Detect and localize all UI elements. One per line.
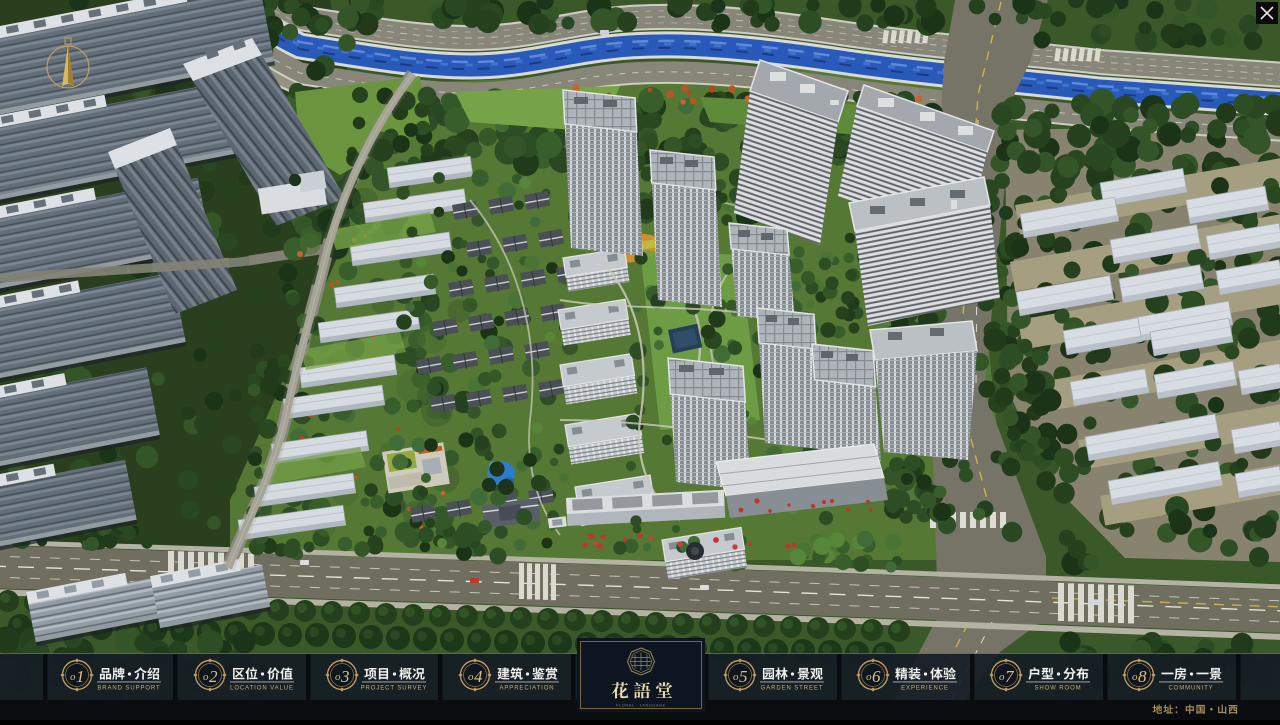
svg-text:FLORAL · LANGUAGE: FLORAL · LANGUAGE bbox=[616, 703, 666, 708]
svg-text:4: 4 bbox=[474, 667, 483, 686]
svg-text:COMMUNITY: COMMUNITY bbox=[1168, 686, 1213, 692]
svg-text:3: 3 bbox=[340, 667, 350, 686]
svg-text:1: 1 bbox=[76, 667, 85, 686]
svg-text:BRAND SUPPORT: BRAND SUPPORT bbox=[97, 686, 160, 692]
svg-text:5: 5 bbox=[739, 667, 748, 686]
svg-text:8: 8 bbox=[1138, 667, 1147, 686]
svg-text:PROJECT SURVEY: PROJECT SURVEY bbox=[361, 686, 428, 692]
svg-text:LOCATION VALUE: LOCATION VALUE bbox=[230, 686, 294, 692]
svg-text:2: 2 bbox=[209, 667, 218, 686]
svg-text:SHOW ROOM: SHOW ROOM bbox=[1034, 686, 1081, 692]
svg-text:6: 6 bbox=[872, 667, 881, 686]
svg-text:APPRECIATION: APPRECIATION bbox=[499, 686, 554, 692]
svg-text:GARDEN STREET: GARDEN STREET bbox=[761, 686, 824, 692]
svg-text:EXPERIENCE: EXPERIENCE bbox=[901, 686, 949, 692]
